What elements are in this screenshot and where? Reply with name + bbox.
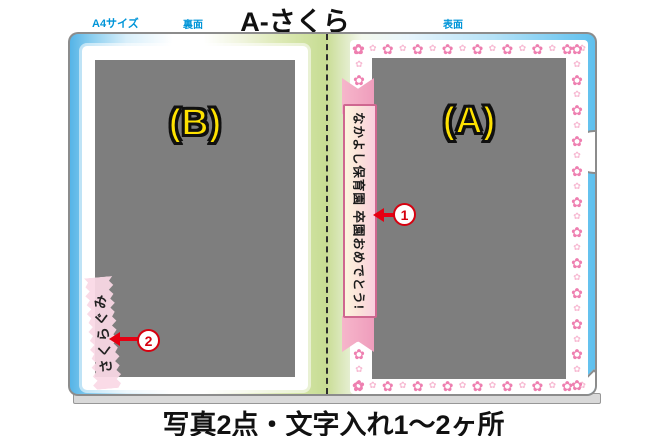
sakura-flower-icon: ✿ [571,134,583,148]
ribbon-banner: なかよし保育園 卒園おめでとう! [343,104,377,318]
sakura-flower-icon: ✿ [548,44,556,53]
sakura-flower-icon: ✿ [573,60,581,69]
sakura-flower-icon: ✿ [573,151,581,160]
sakura-flower-icon: ✿ [573,90,581,99]
sakura-flower-icon: ✿ [399,44,407,53]
sakura-flower-icon: ✿ [573,365,581,374]
sakura-flower-icon: ✿ [442,379,454,393]
sakura-flower-icon: ✿ [502,42,514,56]
sakura-flower-icon: ✿ [369,44,377,53]
sakura-flower-icon: ✿ [353,42,365,56]
sakura-flower-icon: ✿ [571,195,583,209]
sakura-flower-icon: ✿ [571,256,583,270]
sakura-flower-icon: ✿ [459,381,467,390]
sakura-flower-icon: ✿ [412,42,424,56]
placeholder-label-b: (B) [95,102,295,145]
photo-placeholder-b: (B) [95,60,295,377]
sakura-flower-icon: ✿ [531,42,543,56]
arrow-head-icon [373,208,384,222]
callout-marker-1: 1 [393,203,416,226]
sakura-flower-icon: ✿ [429,44,437,53]
sakura-flower-icon: ✿ [353,347,365,361]
front-side-label: 表面 [443,16,463,31]
sakura-flower-icon: ✿ [573,304,581,313]
sakura-flower-icon: ✿ [571,42,583,56]
sakura-flower-icon: ✿ [355,365,363,374]
sakura-flower-icon: ✿ [353,73,365,87]
sakura-flower-icon: ✿ [353,378,365,392]
sakura-flower-icon: ✿ [573,243,581,252]
sakura-flower-icon: ✿ [355,60,363,69]
sakura-flower-icon: ✿ [459,44,467,53]
sakura-flower-icon: ✿ [571,286,583,300]
marker-1-number: 1 [401,207,409,223]
sakura-flower-icon: ✿ [573,121,581,130]
sakura-flower-icon: ✿ [382,42,394,56]
back-side-label: 裏面 [183,16,203,31]
sakura-flower-icon: ✿ [519,44,527,53]
sakura-flower-icon: ✿ [571,225,583,239]
sakura-flower-icon: ✿ [382,379,394,393]
sakura-flower-icon: ✿ [531,379,543,393]
sakura-flower-icon: ✿ [369,381,377,390]
sakura-flower-icon: ✿ [573,182,581,191]
design-proof-sheet: A4サイズ 裏面 A-さくら 表面 (B) ✿✿✿✿✿✿✿✿✿✿✿✿✿✿✿✿ ✿… [0,0,667,436]
sakura-flower-icon: ✿ [548,381,556,390]
sakura-flower-icon: ✿ [573,335,581,344]
sakura-flower-icon: ✿ [571,73,583,87]
paper-size-label: A4サイズ [92,15,139,31]
sakura-flower-icon: ✿ [399,381,407,390]
sakura-flower-icon: ✿ [472,42,484,56]
sakura-border-top: ✿✿✿✿✿✿✿✿✿✿✿✿✿✿✿✿ [352,40,586,57]
sakura-flower-icon: ✿ [429,381,437,390]
marker-2-number: 2 [145,333,153,349]
sakura-flower-icon: ✿ [502,379,514,393]
spine-fold-line [326,34,328,394]
placeholder-label-a: (A) [369,100,569,143]
sakura-flower-icon: ✿ [571,103,583,117]
sakura-flower-icon: ✿ [571,347,583,361]
sakura-flower-icon: ✿ [519,381,527,390]
sakura-border-bottom: ✿✿✿✿✿✿✿✿✿✿✿✿✿✿✿✿ [352,377,586,394]
footer-caption: 写真2点・文字入れ1〜2ヶ所 [0,403,667,436]
sakura-flower-icon: ✿ [489,381,497,390]
sakura-flower-icon: ✿ [489,44,497,53]
arrow-head-icon [109,332,120,346]
sakura-border-right: ✿✿✿✿✿✿✿✿✿✿✿✿✿✿✿✿✿✿✿✿✿✿✿ [568,42,586,392]
sakura-flower-icon: ✿ [472,379,484,393]
callout-marker-2: 2 [137,329,160,352]
sakura-flower-icon: ✿ [571,164,583,178]
sakura-flower-icon: ✿ [412,379,424,393]
sakura-flower-icon: ✿ [571,378,583,392]
ribbon-text: なかよし保育園 卒園おめでとう! [351,112,370,310]
sakura-flower-icon: ✿ [573,212,581,221]
sakura-flower-icon: ✿ [571,317,583,331]
sakura-flower-icon: ✿ [573,273,581,282]
sakura-flower-icon: ✿ [442,42,454,56]
